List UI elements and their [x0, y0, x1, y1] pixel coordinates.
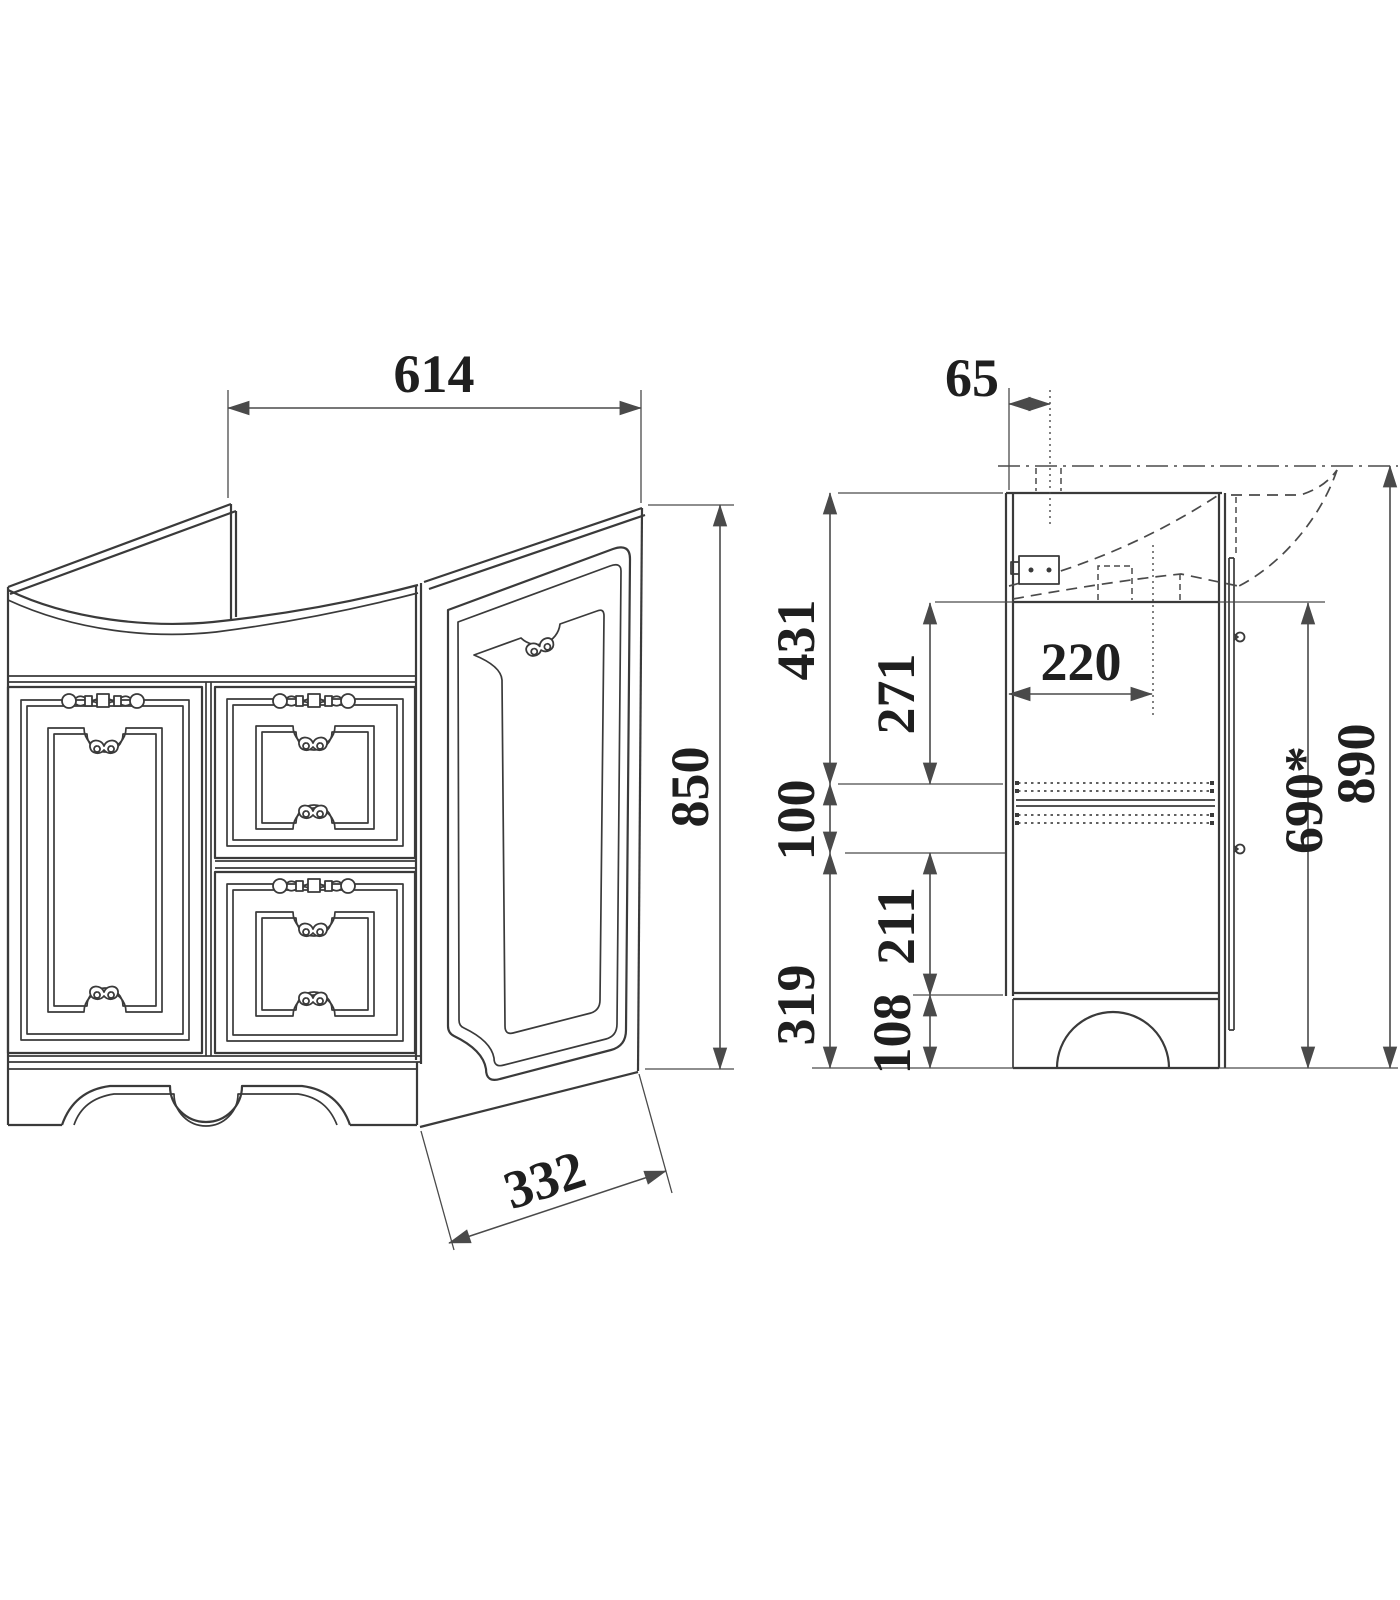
dim-label-top-to-slides: 431: [766, 600, 826, 681]
dim-label-slide-zone: 100: [766, 780, 826, 861]
side-front-edge: [1219, 493, 1225, 1068]
dim-drawer-compartment: 211: [866, 853, 1003, 995]
side-rear-edge: [638, 508, 642, 1071]
drawing-sheet: 614 850 332 65 431 271: [0, 0, 1400, 1600]
right-curved-door: [448, 547, 630, 1080]
dim-label-back-offset: 65: [945, 348, 999, 408]
dim-label-front-width: 614: [394, 344, 475, 404]
drawer-bottom: [215, 872, 415, 1053]
front-view: [8, 504, 645, 1127]
dim-overall-height: 890: [1326, 466, 1390, 1068]
fronts-bottom-rail: [8, 1056, 421, 1062]
dim-label-slides-to-floor: 319: [766, 965, 826, 1046]
drawer-gap-rail: [215, 861, 415, 868]
dim-front-width: 614: [228, 344, 641, 503]
dim-plinth-height: 108: [862, 994, 930, 1075]
dim-basin-to-slides: 271: [866, 602, 1013, 784]
carved-scroll-ornament: [299, 737, 327, 750]
dim-slide-zone: 100: [766, 780, 1005, 861]
drawer-top: [215, 687, 415, 858]
dim-front-opening: 690*: [1219, 602, 1334, 1068]
dim-label-overall-height: 890: [1326, 724, 1386, 805]
bottom-panel: [1013, 993, 1219, 999]
dim-label-drawer-compartment: 211: [866, 887, 926, 965]
left-door: [8, 687, 202, 1053]
curved-door-panel: [474, 610, 604, 1033]
center-stile: [206, 682, 211, 1056]
drawer-handle: [273, 879, 355, 893]
door-panel-inner: [54, 734, 156, 1006]
dim-label-side-depth: 332: [497, 1139, 593, 1221]
door-handle: [62, 694, 144, 708]
dim-label-front-height: 850: [660, 747, 720, 828]
dim-back-offset: 65: [945, 348, 1050, 490]
dim-front-height: 850: [645, 505, 734, 1069]
dim-label-basin-to-slides: 271: [866, 654, 926, 735]
carved-scroll-ornament: [299, 923, 327, 936]
drawer-slides-hidden: [1015, 781, 1215, 825]
front-door-slab: [1229, 558, 1234, 1030]
sink-rim-outer: [8, 585, 418, 624]
dim-drain-offset: 220: [1009, 632, 1152, 694]
carved-scroll-ornament: [525, 636, 556, 658]
dim-label-front-opening: 690*: [1274, 746, 1334, 854]
back-panel-right-edge: [231, 504, 236, 620]
plinth: [8, 1062, 417, 1126]
door-panel: [48, 728, 162, 1012]
plinth-arch: [1057, 1012, 1169, 1068]
side-bottom-edge: [420, 1072, 638, 1127]
side-back-edge: [1006, 493, 1013, 996]
dim-label-drain-offset: 220: [1041, 632, 1122, 692]
dim-top-to-slides: 431: [766, 493, 1003, 784]
drawer-handle: [273, 694, 355, 708]
back-panel-top-edge: [8, 504, 236, 594]
basin-front-bowl: [1239, 470, 1337, 586]
dim-side-panel-depth: 332: [421, 1074, 672, 1250]
carved-scroll-ornament: [90, 740, 118, 753]
fronts-top-rail: [8, 676, 416, 682]
plinth-scallop-outer: [62, 1086, 350, 1125]
dim-slides-to-floor: 319: [766, 853, 830, 1068]
mounting-bracket: [1011, 556, 1059, 584]
dim-label-plinth-height: 108: [862, 994, 922, 1075]
siphon-hidden: [1098, 566, 1132, 600]
front-right-corner: [416, 583, 421, 1064]
vanity-cabinet-technical-drawing: 614 850 332 65 431 271: [0, 0, 1400, 1600]
